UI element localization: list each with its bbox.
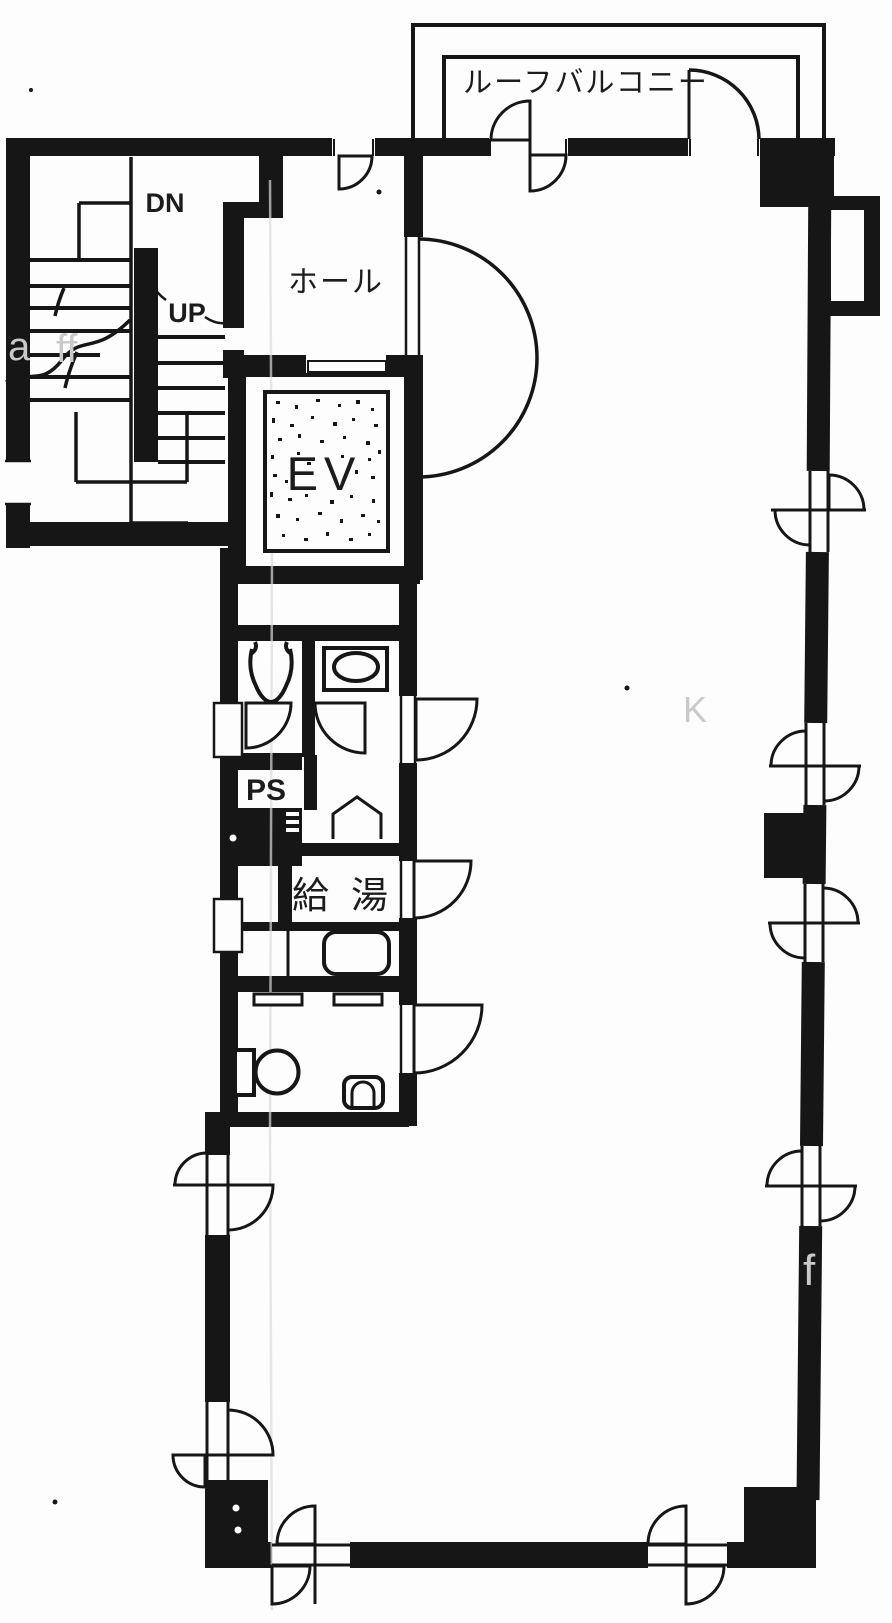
svg-text:a: a — [8, 325, 31, 369]
svg-text:ホール: ホール — [288, 266, 384, 299]
svg-text:ルーフバルコニー: ルーフバルコニー — [463, 67, 709, 99]
svg-text:DN: DN — [146, 188, 185, 218]
svg-text:f: f — [803, 1246, 816, 1295]
svg-text:UP: UP — [168, 298, 206, 328]
svg-text:EV: EV — [287, 447, 362, 500]
svg-text:ff: ff — [56, 327, 78, 371]
svg-text:PS: PS — [246, 774, 286, 807]
svg-text:K: K — [683, 689, 707, 730]
svg-text:給湯: 給湯 — [292, 875, 410, 916]
